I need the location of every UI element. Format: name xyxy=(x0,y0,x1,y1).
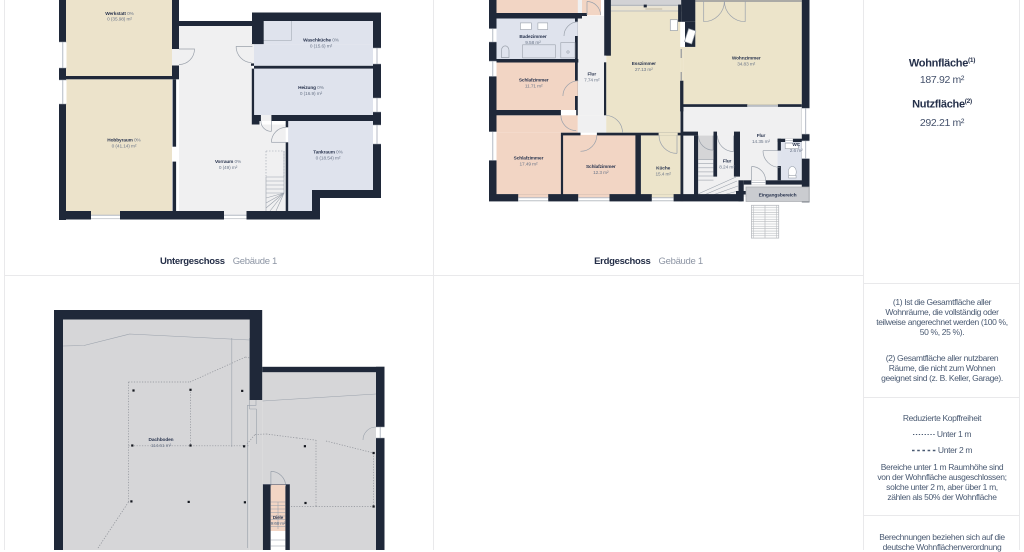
svg-text:Schlafzimmer: Schlafzimmer xyxy=(514,156,544,162)
svg-text:0 (49) m²: 0 (49) m² xyxy=(219,165,238,171)
svg-text:14.35 m²: 14.35 m² xyxy=(752,139,770,145)
svg-text:0 (15.6) m²: 0 (15.6) m² xyxy=(310,44,333,50)
svg-text:9.68 m²: 9.68 m² xyxy=(271,521,286,526)
svg-text:Flur: Flur xyxy=(588,71,597,77)
svg-text:Hobbyraum 0%: Hobbyraum 0% xyxy=(107,138,141,144)
svg-text:Flur: Flur xyxy=(757,133,766,139)
svg-text:WC: WC xyxy=(792,142,800,148)
svg-text:9.58 m²: 9.58 m² xyxy=(525,40,541,46)
svg-text:Diele: Diele xyxy=(273,515,284,520)
svg-text:34.83 m²: 34.83 m² xyxy=(737,62,755,68)
svg-text:Flur: Flur xyxy=(723,159,732,165)
svg-text:15.4 m²: 15.4 m² xyxy=(655,172,671,178)
svg-text:0 (35.98) m²: 0 (35.98) m² xyxy=(107,17,132,23)
svg-text:17.49 m²: 17.49 m² xyxy=(520,161,538,167)
svg-text:Vorraum 0%: Vorraum 0% xyxy=(215,159,242,165)
svg-text:Küche: Küche xyxy=(656,166,670,172)
svg-text:7.74 m²: 7.74 m² xyxy=(584,77,600,83)
svg-text:2.6 m²: 2.6 m² xyxy=(790,148,803,154)
svg-text:27.13 m²: 27.13 m² xyxy=(635,67,653,73)
svg-text:0 (41.14) m²: 0 (41.14) m² xyxy=(112,143,137,149)
svg-text:Tankraum 0%: Tankraum 0% xyxy=(313,150,343,156)
svg-text:8.24 m²: 8.24 m² xyxy=(719,164,735,170)
svg-text:0 (16.9) m²: 0 (16.9) m² xyxy=(300,91,323,97)
svg-text:12.3 m²: 12.3 m² xyxy=(593,170,609,176)
svg-text:Schlafzimmer: Schlafzimmer xyxy=(519,78,549,84)
svg-text:Wohnzimmer: Wohnzimmer xyxy=(732,56,761,62)
svg-text:Werkstatt 0%: Werkstatt 0% xyxy=(105,11,134,17)
svg-text:11.71 m²: 11.71 m² xyxy=(525,83,543,89)
svg-text:Heizung 0%: Heizung 0% xyxy=(298,85,325,91)
svg-text:Schlafzimmer: Schlafzimmer xyxy=(586,164,616,170)
svg-text:Waschküche 0%: Waschküche 0% xyxy=(303,38,340,44)
svg-text:Badezimmer: Badezimmer xyxy=(519,34,546,40)
svg-text:Esszimmer: Esszimmer xyxy=(632,61,656,67)
svg-text:Eingangsbereich: Eingangsbereich xyxy=(759,193,797,199)
svg-text:0 (18.54) m²: 0 (18.54) m² xyxy=(316,155,341,161)
svg-text:114.61 m²: 114.61 m² xyxy=(151,443,172,449)
svg-text:Dachboden: Dachboden xyxy=(149,437,174,443)
